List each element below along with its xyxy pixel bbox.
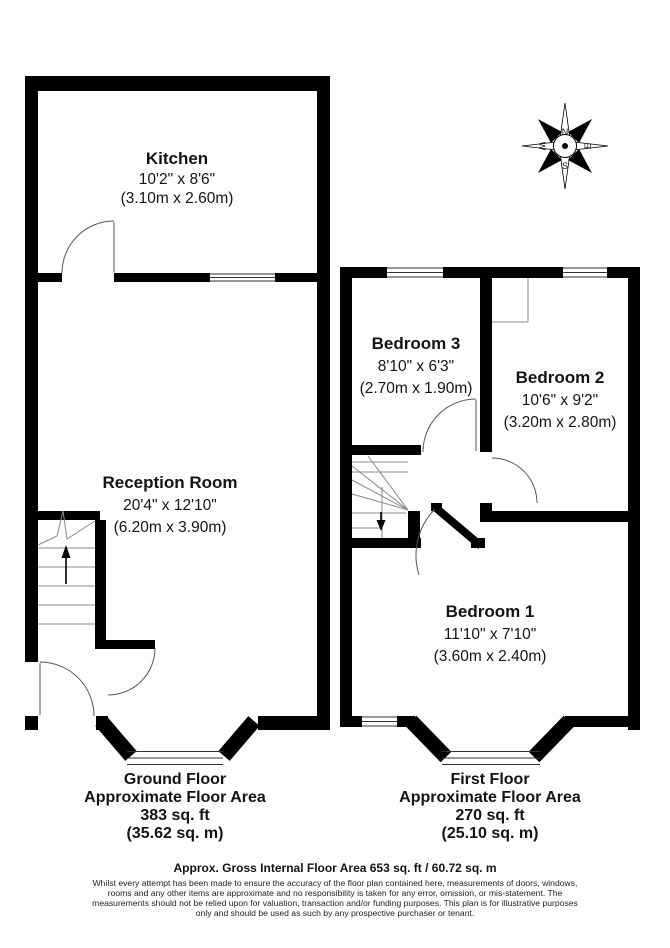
bedroom3-label: Bedroom 3 8'10" x 6'3" (2.70m x 1.90m) (360, 334, 473, 397)
bedroom3-imperial: 8'10" x 6'3" (378, 358, 454, 375)
bedroom2-imperial: 10'6" x 9'2" (522, 392, 598, 409)
floor-plan-canvas: Kitchen 10'2" x 8'6" (3.10m x 2.60m) Rec… (0, 0, 670, 948)
bedroom1-name: Bedroom 1 (446, 602, 535, 621)
compass-east-label: E (583, 143, 593, 149)
bedroom1-label: Bedroom 1 11'10" x 7'10" (3.60m x 2.40m) (434, 602, 547, 665)
first-floor-area-label: First Floor Approximate Floor Area 270 s… (399, 771, 581, 842)
first-floor-subtitle: Approximate Floor Area (399, 789, 581, 806)
kitchen-label: Kitchen 10'2" x 8'6" (3.10m x 2.60m) (121, 149, 234, 207)
gross-area-title: Approx. Gross Internal Floor Area 653 sq… (174, 861, 497, 875)
stairs-up-arrow (62, 545, 71, 584)
disclaimer-line-2: rooms and any other items are approximat… (108, 888, 563, 898)
ground-floor-area-m: (35.62 sq. m) (127, 825, 224, 842)
ground-floor-subtitle: Approximate Floor Area (84, 789, 266, 806)
reception-room-label: Reception Room 20'4" x 12'10" (6.20m x 3… (102, 473, 237, 536)
footer-disclaimer: Approx. Gross Internal Floor Area 653 sq… (92, 861, 578, 918)
first-floor-area-m: (25.10 sq. m) (442, 825, 539, 842)
ground-floor-plan: Kitchen 10'2" x 8'6" (3.10m x 2.60m) Rec… (25, 76, 330, 842)
reception-name: Reception Room (102, 473, 237, 492)
bedroom2-name: Bedroom 2 (516, 368, 605, 387)
first-floor-staircase (352, 456, 408, 538)
first-floor-plan: Bedroom 3 8'10" x 6'3" (2.70m x 1.90m) B… (340, 267, 640, 842)
disclaimer-line-1: Whilst every attempt has been made to en… (93, 878, 578, 888)
compass-rose-icon: N S W E (522, 103, 608, 189)
bedroom3-metric: (2.70m x 1.90m) (360, 380, 473, 397)
reception-metric: (6.20m x 3.90m) (114, 519, 227, 536)
disclaimer-line-3: measurements should not be relied upon f… (92, 898, 578, 908)
bedroom3-name: Bedroom 3 (372, 334, 461, 353)
first-floor-title: First Floor (450, 771, 529, 788)
ground-floor-title: Ground Floor (124, 771, 226, 788)
reception-imperial: 20'4" x 12'10" (123, 497, 217, 514)
bedroom2-label: Bedroom 2 10'6" x 9'2" (3.20m x 2.80m) (504, 368, 617, 431)
bedroom1-imperial: 11'10" x 7'10" (444, 626, 536, 643)
disclaimer-line-4: only and should be used as such by any p… (196, 908, 475, 918)
compass-north-label: N (562, 127, 569, 137)
compass-west-label: W (537, 142, 547, 151)
kitchen-metric: (3.10m x 2.60m) (121, 190, 234, 207)
first-floor-area-ft: 270 sq. ft (455, 807, 525, 824)
bedroom2-closet (492, 278, 528, 322)
kitchen-name: Kitchen (146, 149, 208, 168)
compass-south-label: S (562, 161, 568, 171)
ground-floor-staircase (38, 511, 95, 624)
kitchen-imperial: 10'2" x 8'6" (139, 171, 215, 188)
ground-floor-area-ft: 383 sq. ft (140, 807, 210, 824)
ground-floor-area-label: Ground Floor Approximate Floor Area 383 … (84, 771, 266, 842)
bedroom2-metric: (3.20m x 2.80m) (504, 414, 617, 431)
bedroom1-metric: (3.60m x 2.40m) (434, 648, 547, 665)
